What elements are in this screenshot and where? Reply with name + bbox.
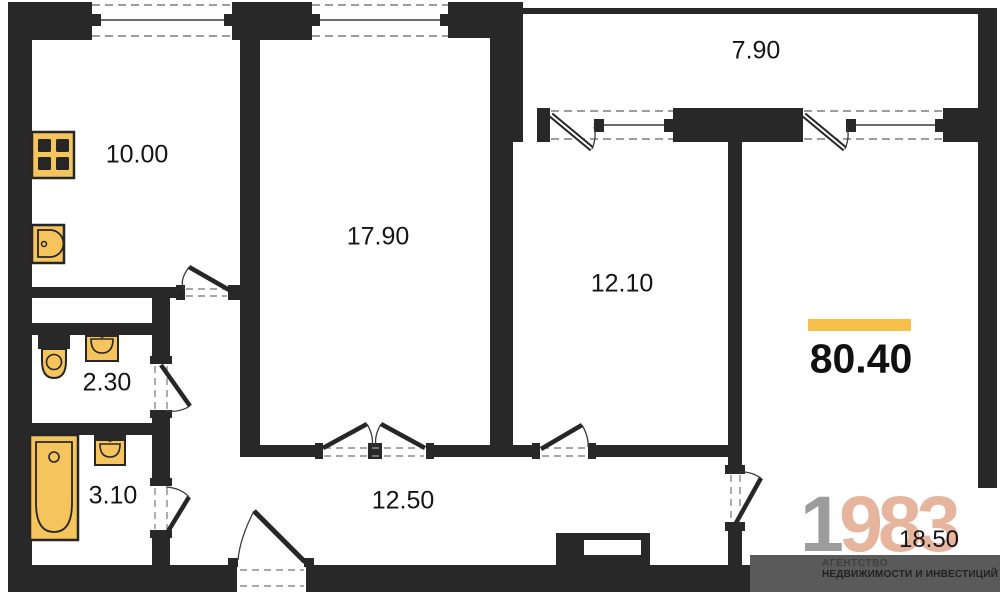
agency-tagline-line2: НЕДВИЖИМОСТИ И ИНВЕСТИЦИЙ [822, 569, 998, 580]
wc-sink-icon [86, 331, 118, 361]
door-opening-dashes [155, 289, 740, 586]
room-label-bedroom2: 18.50 [899, 526, 959, 554]
room-label-balcony: 7.90 [732, 37, 781, 66]
room-label-wc: 2.30 [83, 369, 132, 398]
agency-tagline-line1: АГЕНТСТВО [822, 558, 998, 569]
total-area-accent-bar [808, 319, 911, 331]
door-swing-arcs [165, 127, 848, 560]
room-label-hallway: 12.50 [372, 487, 435, 516]
stove-icon [32, 132, 74, 178]
door-double-right [381, 424, 425, 448]
toilet-icon [38, 333, 70, 378]
bath-sink-icon [95, 435, 125, 465]
total-area-label: 80.40 [810, 336, 913, 383]
door-kitchen [189, 267, 231, 291]
logo-year-accent: 983 [839, 479, 956, 568]
door-bedroom1 [541, 425, 582, 449]
door-double-left [323, 424, 367, 448]
door-bathroom [167, 497, 189, 533]
bathtub-icon [30, 435, 78, 540]
door-leaves [161, 115, 845, 562]
room-label-kitchen: 10.00 [106, 141, 169, 170]
kitchen-sink-icon [32, 225, 64, 263]
room-label-bathroom: 3.10 [89, 482, 138, 511]
door-entrance [254, 511, 305, 562]
room-label-bedroom1: 12.10 [591, 270, 654, 299]
window-jamb-blocks [92, 14, 945, 132]
logo-year-gray: 1 [800, 479, 839, 568]
room-label-living: 17.90 [347, 223, 410, 252]
floorplan: 1983 АГЕНТСТВО НЕДВИЖИМОСТИ И ИНВЕСТИЦИЙ… [0, 0, 1000, 592]
agency-tagline: АГЕНТСТВО НЕДВИЖИМОСТИ И ИНВЕСТИЦИЙ [822, 558, 998, 580]
door-wc [161, 365, 190, 406]
